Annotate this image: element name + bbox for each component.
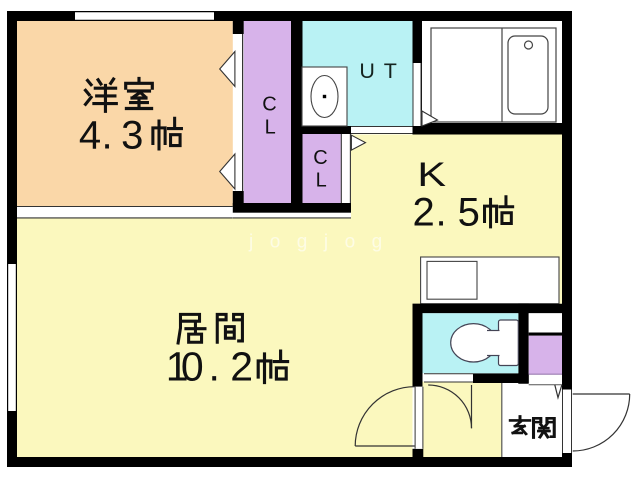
svg-text:4.3: 4.3 (79, 114, 144, 158)
svg-text:jogjog: jogjog (248, 232, 399, 253)
svg-text:K: K (417, 156, 446, 194)
svg-text:L: L (316, 169, 327, 191)
svg-text:C: C (262, 93, 276, 115)
svg-text:2.5: 2.5 (412, 191, 479, 235)
svg-text:10.2: 10.2 (166, 344, 253, 390)
svg-text:L: L (265, 117, 276, 139)
svg-text:C: C (313, 147, 327, 169)
